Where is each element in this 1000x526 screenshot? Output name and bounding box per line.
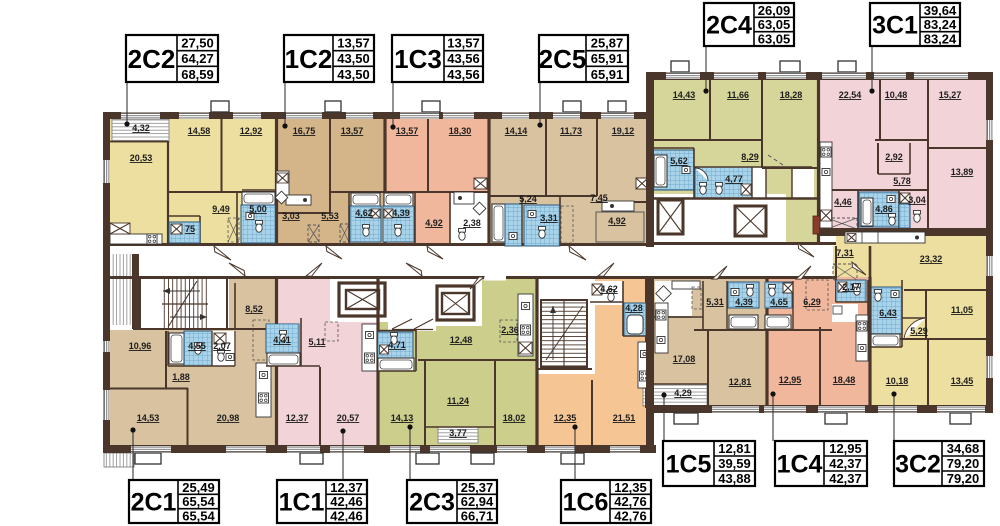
svg-text:1C5: 1C5 xyxy=(666,451,712,479)
svg-text:20,57: 20,57 xyxy=(337,413,360,423)
svg-text:13,57: 13,57 xyxy=(337,36,370,51)
svg-text:6,43: 6,43 xyxy=(879,308,897,318)
svg-text:2C3: 2C3 xyxy=(409,489,455,517)
svg-text:4,71: 4,71 xyxy=(388,340,406,350)
svg-text:79,20: 79,20 xyxy=(947,471,980,486)
svg-text:22,54: 22,54 xyxy=(839,90,862,100)
svg-text:15,27: 15,27 xyxy=(939,90,962,100)
svg-text:12,35: 12,35 xyxy=(614,480,647,495)
svg-text:4,29: 4,29 xyxy=(674,388,692,398)
svg-text:17,08: 17,08 xyxy=(673,354,696,364)
svg-text:5,11: 5,11 xyxy=(308,337,325,347)
svg-text:65,54: 65,54 xyxy=(182,494,215,509)
svg-text:18,30: 18,30 xyxy=(449,126,472,136)
svg-text:2,92: 2,92 xyxy=(885,152,903,162)
svg-text:83,24: 83,24 xyxy=(924,17,957,32)
svg-text:43,56: 43,56 xyxy=(447,67,480,82)
svg-text:4,92: 4,92 xyxy=(608,216,626,226)
svg-text:21,51: 21,51 xyxy=(613,413,636,423)
svg-text:12,48: 12,48 xyxy=(450,335,473,345)
svg-text:14,13: 14,13 xyxy=(391,413,414,423)
svg-text:20,53: 20,53 xyxy=(130,153,153,163)
svg-text:4,77: 4,77 xyxy=(725,174,743,184)
svg-text:14,58: 14,58 xyxy=(188,126,211,136)
svg-text:13,89: 13,89 xyxy=(951,167,974,177)
svg-text:5,53: 5,53 xyxy=(321,211,339,221)
svg-text:1C4: 1C4 xyxy=(777,451,823,479)
svg-text:1,88: 1,88 xyxy=(172,372,190,382)
svg-text:5,29: 5,29 xyxy=(910,326,928,336)
svg-text:19,12: 19,12 xyxy=(612,126,635,136)
svg-text:64,27: 64,27 xyxy=(181,51,214,66)
svg-text:11,66: 11,66 xyxy=(727,90,749,100)
svg-text:23,32: 23,32 xyxy=(920,254,943,264)
svg-text:43,56: 43,56 xyxy=(447,51,480,66)
svg-text:4,39: 4,39 xyxy=(392,208,410,218)
svg-text:12,92: 12,92 xyxy=(240,126,263,136)
svg-text:3C2: 3C2 xyxy=(895,451,941,479)
svg-text:5,31: 5,31 xyxy=(706,297,724,307)
svg-text:2C4: 2C4 xyxy=(706,12,752,40)
svg-text:42,46: 42,46 xyxy=(330,494,363,509)
svg-text:25,87: 25,87 xyxy=(591,36,624,51)
svg-text:63,05: 63,05 xyxy=(758,32,791,47)
svg-text:4,39: 4,39 xyxy=(735,297,753,307)
svg-text:4,65: 4,65 xyxy=(770,297,788,307)
svg-text:5,00: 5,00 xyxy=(249,204,267,214)
svg-text:1C2: 1C2 xyxy=(285,44,333,74)
svg-text:14,43: 14,43 xyxy=(673,90,696,100)
svg-text:8,52: 8,52 xyxy=(245,304,263,314)
svg-text:65,91: 65,91 xyxy=(591,51,624,66)
svg-text:25,49: 25,49 xyxy=(182,480,215,495)
svg-text:4,41: 4,41 xyxy=(273,335,291,345)
svg-text:9,49: 9,49 xyxy=(212,204,230,214)
svg-text:3,04: 3,04 xyxy=(908,195,926,205)
svg-text:5,78: 5,78 xyxy=(893,176,911,186)
svg-text:10,48: 10,48 xyxy=(885,90,908,100)
svg-text:4,46: 4,46 xyxy=(834,197,852,207)
svg-text:14,14: 14,14 xyxy=(505,126,528,136)
svg-text:12,37: 12,37 xyxy=(286,413,309,423)
svg-text:13,45: 13,45 xyxy=(951,376,974,386)
svg-text:2,36: 2,36 xyxy=(501,325,519,335)
svg-text:34,68: 34,68 xyxy=(947,441,980,456)
svg-text:4,32: 4,32 xyxy=(132,123,150,133)
svg-text:6,29: 6,29 xyxy=(803,297,821,307)
svg-text:79,20: 79,20 xyxy=(947,456,980,471)
svg-text:25,37: 25,37 xyxy=(461,480,494,495)
svg-text:11,05: 11,05 xyxy=(951,305,973,315)
svg-text:13,57: 13,57 xyxy=(396,126,419,136)
svg-text:2C2: 2C2 xyxy=(128,44,176,74)
svg-text:14,53: 14,53 xyxy=(137,413,160,423)
svg-text:12,95: 12,95 xyxy=(779,375,802,385)
svg-text:18,02: 18,02 xyxy=(503,413,526,423)
svg-text:3,03: 3,03 xyxy=(282,211,300,221)
svg-text:65,91: 65,91 xyxy=(591,67,624,82)
svg-text:4,62: 4,62 xyxy=(600,284,618,294)
svg-text:43,50: 43,50 xyxy=(337,51,370,66)
svg-text:3,31: 3,31 xyxy=(540,213,558,223)
svg-text:12,95: 12,95 xyxy=(829,441,862,456)
svg-text:4,55: 4,55 xyxy=(188,341,206,351)
svg-text:11,24: 11,24 xyxy=(447,396,469,406)
svg-text:12,37: 12,37 xyxy=(330,480,363,495)
svg-text:4,28: 4,28 xyxy=(625,303,643,313)
svg-text:7,45: 7,45 xyxy=(590,193,608,203)
svg-text:2,38: 2,38 xyxy=(463,218,481,228)
svg-text:16,75: 16,75 xyxy=(293,126,316,136)
svg-text:12,35: 12,35 xyxy=(554,413,577,423)
svg-text:3,77: 3,77 xyxy=(449,428,467,438)
svg-text:5,62: 5,62 xyxy=(670,156,688,166)
svg-text:42,76: 42,76 xyxy=(614,494,647,509)
svg-text:2C1: 2C1 xyxy=(131,489,177,517)
svg-text:10,18: 10,18 xyxy=(886,376,909,386)
svg-text:10,96: 10,96 xyxy=(129,341,152,351)
svg-text:26,09: 26,09 xyxy=(758,3,791,18)
svg-text:68,59: 68,59 xyxy=(181,67,214,82)
svg-text:83,24: 83,24 xyxy=(924,32,957,47)
svg-text:65,54: 65,54 xyxy=(182,509,215,524)
svg-text:43,88: 43,88 xyxy=(718,471,751,486)
svg-text:42,37: 42,37 xyxy=(829,456,862,471)
svg-text:63,05: 63,05 xyxy=(758,17,791,32)
svg-text:4,86: 4,86 xyxy=(875,204,893,214)
svg-text:4,62: 4,62 xyxy=(355,208,373,218)
svg-text:20,98: 20,98 xyxy=(217,413,240,423)
svg-text:42,37: 42,37 xyxy=(829,471,862,486)
svg-text:12,81: 12,81 xyxy=(718,441,751,456)
svg-text:2,17: 2,17 xyxy=(842,282,860,292)
svg-text:18,48: 18,48 xyxy=(833,375,856,385)
svg-text:75: 75 xyxy=(185,224,195,234)
svg-text:11,73: 11,73 xyxy=(560,126,582,136)
svg-text:66,71: 66,71 xyxy=(461,509,494,524)
svg-text:13,57: 13,57 xyxy=(447,36,480,51)
svg-text:1C1: 1C1 xyxy=(279,489,325,517)
svg-text:1C3: 1C3 xyxy=(394,44,442,74)
svg-text:18,28: 18,28 xyxy=(780,90,803,100)
svg-text:4,92: 4,92 xyxy=(425,218,443,228)
svg-text:5,24: 5,24 xyxy=(519,194,537,204)
svg-text:2C5: 2C5 xyxy=(539,44,587,74)
svg-text:1C6: 1C6 xyxy=(563,489,609,517)
svg-text:62,94: 62,94 xyxy=(461,494,494,509)
svg-text:39,59: 39,59 xyxy=(718,456,751,471)
svg-text:43,50: 43,50 xyxy=(337,67,370,82)
svg-text:42,46: 42,46 xyxy=(330,509,363,524)
svg-text:42,76: 42,76 xyxy=(614,509,647,524)
svg-text:7,31: 7,31 xyxy=(836,248,854,258)
svg-text:39,64: 39,64 xyxy=(924,3,957,18)
svg-text:2,07: 2,07 xyxy=(213,341,231,351)
svg-text:27,50: 27,50 xyxy=(181,36,214,51)
svg-text:3C1: 3C1 xyxy=(872,12,918,40)
svg-text:12,81: 12,81 xyxy=(729,377,752,387)
svg-text:8,29: 8,29 xyxy=(741,152,759,162)
svg-text:13,57: 13,57 xyxy=(341,126,364,136)
